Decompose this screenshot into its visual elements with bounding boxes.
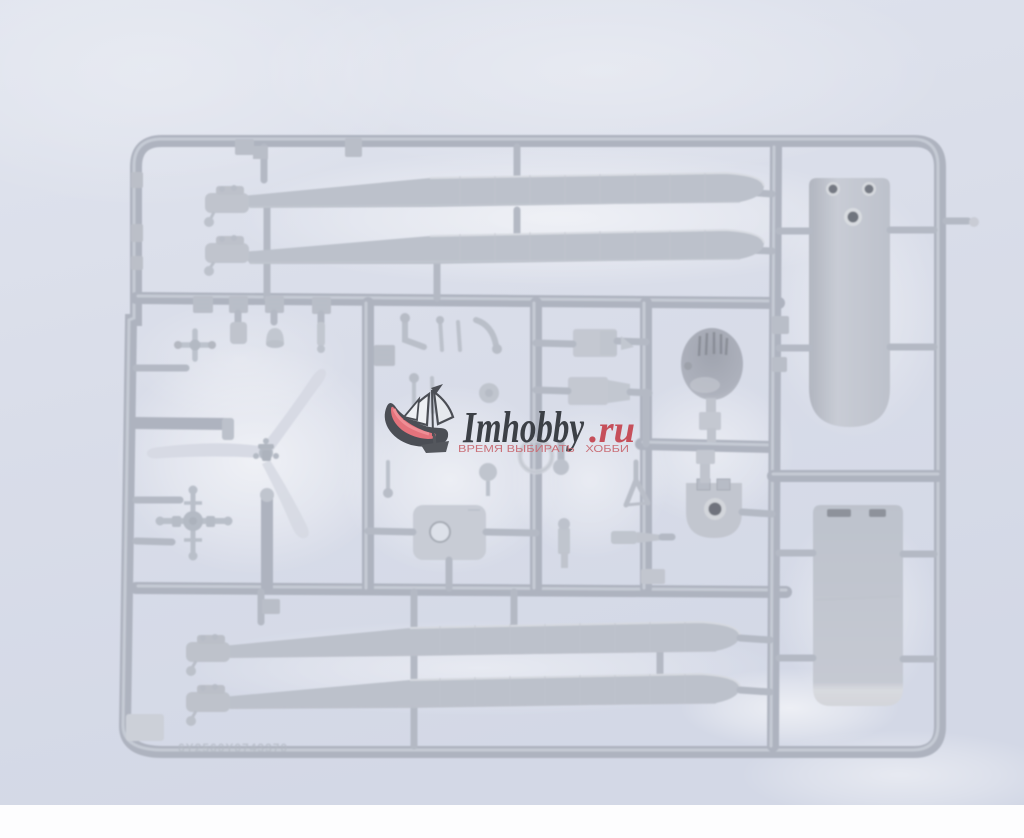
svg-text:ВРЕМЯ ВЫБИРАТЬ ХОББИ: ВРЕМЯ ВЫБИРАТЬ ХОББИ — [458, 444, 629, 455]
svg-text:6Y2560Y0743370: 6Y2560Y0743370 — [178, 741, 288, 755]
